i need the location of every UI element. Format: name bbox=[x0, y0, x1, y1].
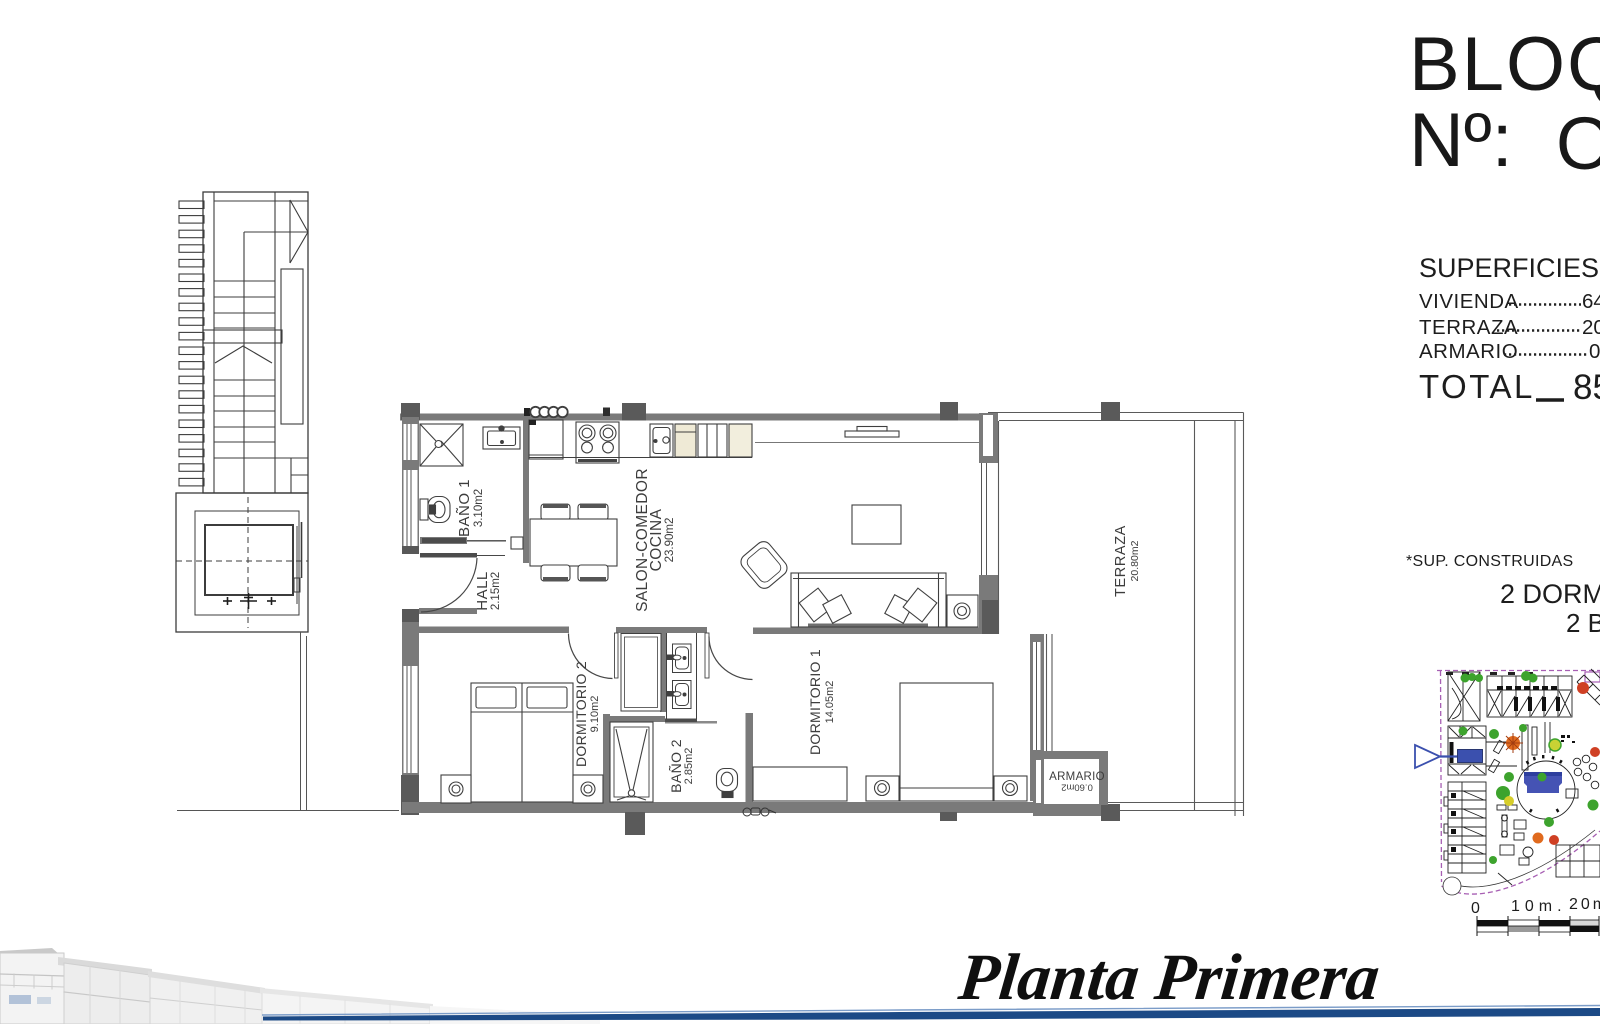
svg-text:COCINA: COCINA bbox=[648, 508, 665, 571]
svg-text:TERRAZA: TERRAZA bbox=[1419, 316, 1518, 339]
svg-text:0: 0 bbox=[1589, 340, 1600, 363]
svg-text:64: 64 bbox=[1582, 290, 1600, 313]
svg-text:DORMITORIO 2: DORMITORIO 2 bbox=[573, 661, 589, 767]
svg-text:85: 85 bbox=[1573, 368, 1600, 407]
svg-text:0: 0 bbox=[1471, 900, 1480, 917]
svg-text:DORMITORIO 1: DORMITORIO 1 bbox=[807, 649, 823, 755]
svg-text:BLOQ: BLOQ bbox=[1409, 22, 1600, 107]
svg-text:*SUP. CONSTRUIDAS: *SUP. CONSTRUIDAS bbox=[1406, 553, 1574, 570]
svg-text:10m.: 10m. bbox=[1511, 898, 1567, 915]
svg-text:Nº:: Nº: bbox=[1409, 98, 1513, 183]
svg-text:ARMARIO: ARMARIO bbox=[1419, 340, 1518, 363]
svg-text:TOTAL: TOTAL bbox=[1419, 368, 1535, 405]
svg-text:VIVIENDA: VIVIENDA bbox=[1419, 290, 1519, 313]
svg-text:20: 20 bbox=[1582, 316, 1600, 339]
svg-text:9.10m2: 9.10m2 bbox=[589, 696, 601, 733]
svg-text:2 DORMITORIOS: 2 DORMITORIOS bbox=[1500, 579, 1600, 609]
svg-text:O: O bbox=[1556, 102, 1600, 185]
svg-text:2.15m2: 2.15m2 bbox=[490, 572, 502, 610]
svg-text:Planta Primera: Planta Primera bbox=[955, 941, 1383, 1014]
svg-text:ARMARIO: ARMARIO bbox=[1049, 771, 1105, 783]
svg-text:20.80m2: 20.80m2 bbox=[1129, 540, 1141, 581]
svg-text:BAÑO 1: BAÑO 1 bbox=[456, 479, 473, 537]
svg-text:0.60m2: 0.60m2 bbox=[1061, 782, 1093, 793]
svg-text:HALL: HALL bbox=[474, 571, 491, 611]
svg-text:TERRAZA: TERRAZA bbox=[1113, 525, 1129, 597]
svg-text:2.85m2: 2.85m2 bbox=[683, 748, 695, 785]
svg-text:14.05m2: 14.05m2 bbox=[824, 681, 836, 724]
svg-text:SUPERFICIES: SUPERFICIES bbox=[1419, 253, 1599, 283]
svg-text:23.90m2: 23.90m2 bbox=[664, 518, 676, 563]
svg-text:3.10m2: 3.10m2 bbox=[473, 489, 485, 527]
svg-text:20m: 20m bbox=[1569, 896, 1600, 913]
svg-text:BAÑO 2: BAÑO 2 bbox=[668, 739, 684, 793]
svg-text:2 BAÑOS: 2 BAÑOS bbox=[1566, 608, 1600, 638]
